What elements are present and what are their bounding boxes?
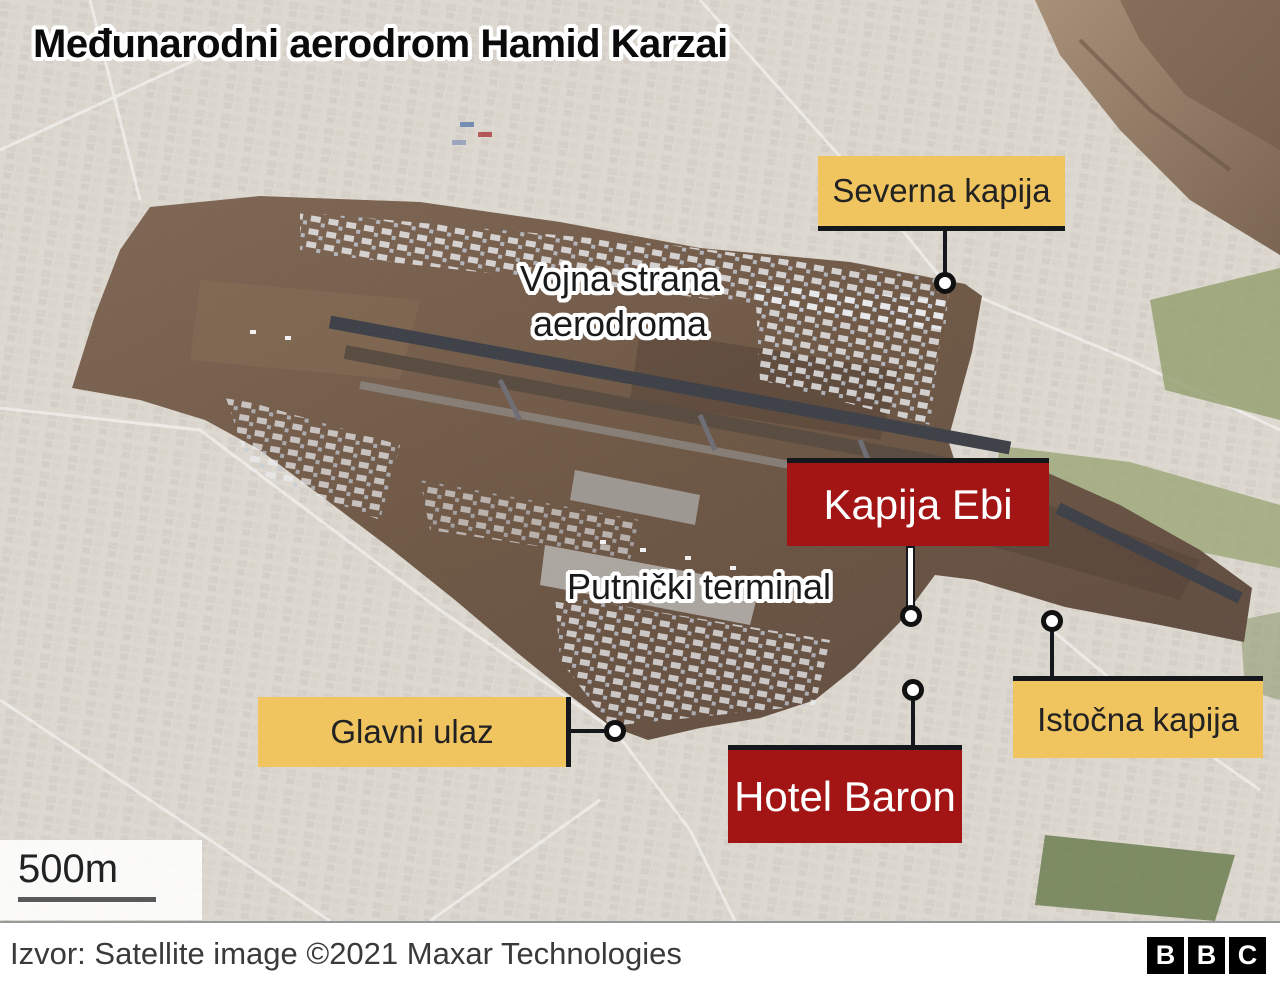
label-north-gate-text: Severna kapija [832,172,1050,210]
scale-bar: 500m [0,840,202,920]
satellite-map: Međunarodni aerodrom Hamid Karzai Vojna … [0,0,1280,921]
abbey-gate-marker-dot [900,605,922,627]
scale-line [18,897,156,902]
east-gate-marker-dot [1041,610,1063,632]
label-east-gate: Istočna kapija [1013,676,1263,758]
label-hotel-baron-text: Hotel Baron [734,773,956,821]
scale-label: 500m [18,847,118,892]
label-main-entrance-text: Glavni ulaz [330,713,493,751]
main-entrance-marker-dot [604,720,626,742]
map-title: Međunarodni aerodrom Hamid Karzai [33,22,728,67]
label-north-gate: Severna kapija [818,156,1065,231]
annotation-military-side: Vojna strana aerodroma [430,256,810,346]
label-main-entrance: Glavni ulaz [258,697,571,767]
label-abbey-gate-text: Kapija Ebi [823,481,1012,529]
footer: Izvor: Satellite image ©2021 Maxar Techn… [0,921,1280,984]
north-gate-marker-dot [934,272,956,294]
hotel-baron-marker-dot [902,679,924,701]
bbc-logo-block-2: B [1188,937,1225,974]
label-east-gate-text: Istočna kapija [1037,701,1239,739]
label-hotel-baron: Hotel Baron [728,745,962,843]
annotation-military-side-line1: Vojna strana [430,256,810,301]
airport-map-infographic: Međunarodni aerodrom Hamid Karzai Vojna … [0,0,1280,984]
bbc-logo-block-3: C [1229,937,1266,974]
source-attribution: Izvor: Satellite image ©2021 Maxar Techn… [10,923,682,984]
satellite-map-art [0,0,1280,921]
annotation-passenger-terminal: Putnički terminal [509,564,889,609]
bbc-logo: B B C [1147,937,1266,974]
bbc-logo-block-1: B [1147,937,1184,974]
annotation-military-side-line2: aerodroma [430,301,810,346]
label-abbey-gate: Kapija Ebi [787,458,1049,546]
